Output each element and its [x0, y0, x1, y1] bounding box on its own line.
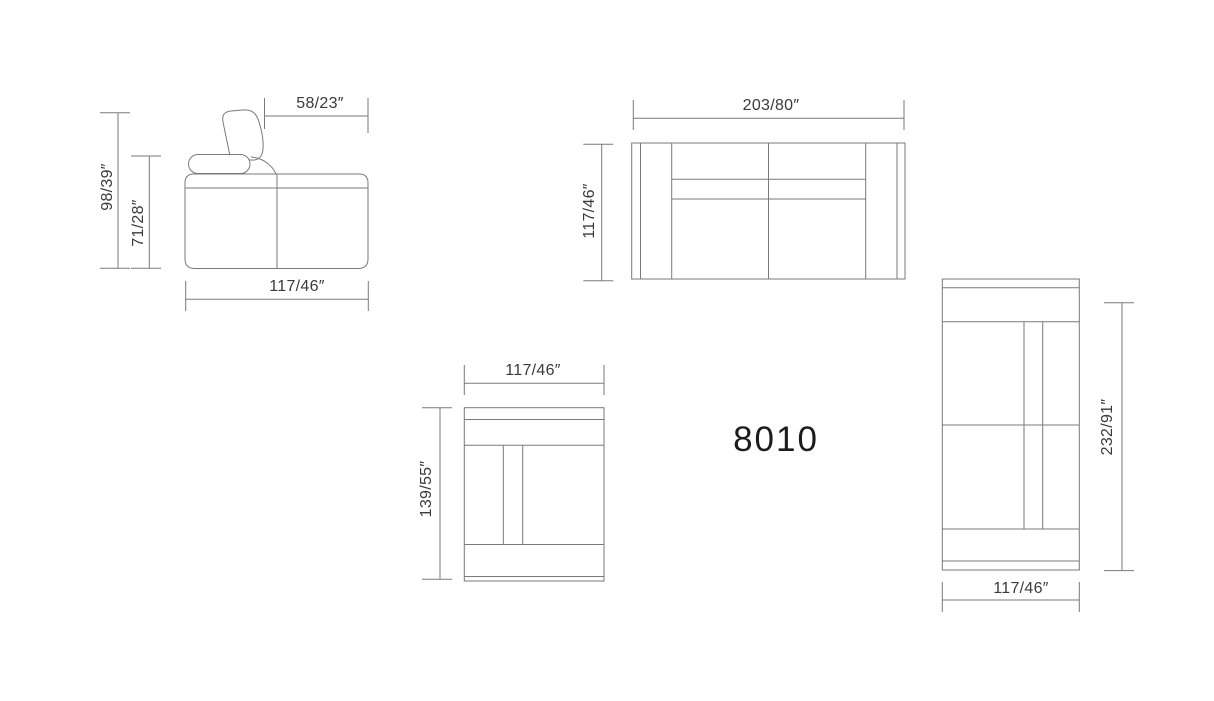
side-depth-label: 117/46″ [269, 278, 325, 296]
furniture-dimension-diagram: 98/39″ 71/28″ 58/23″ 117/46″ 203/80″ 117… [0, 0, 1214, 701]
front-height-label: 117/46″ [581, 183, 599, 239]
front-width-label: 203/80″ [743, 97, 800, 115]
side-view-drawing [185, 110, 368, 269]
front-view-drawing [632, 143, 905, 279]
side-backrest-top-depth-label: 58/23″ [296, 95, 344, 113]
chair-depth-label: 139/55″ [418, 461, 436, 518]
side-view-headrest [223, 110, 263, 160]
chair-width-label: 117/46″ [505, 362, 561, 380]
model-number: 8010 [733, 420, 819, 460]
side-arm-height-label: 71/28″ [130, 199, 148, 247]
chair-top-outline [464, 408, 604, 581]
chaise-length-label: 232/91″ [1099, 399, 1117, 456]
chair-top-view-drawing [464, 408, 604, 581]
side-overall-height-label: 98/39″ [99, 163, 117, 211]
chaise-width-label: 117/46″ [993, 580, 1049, 598]
chaise-top-view-drawing [942, 279, 1079, 570]
side-view-arm-pillow [189, 155, 251, 174]
